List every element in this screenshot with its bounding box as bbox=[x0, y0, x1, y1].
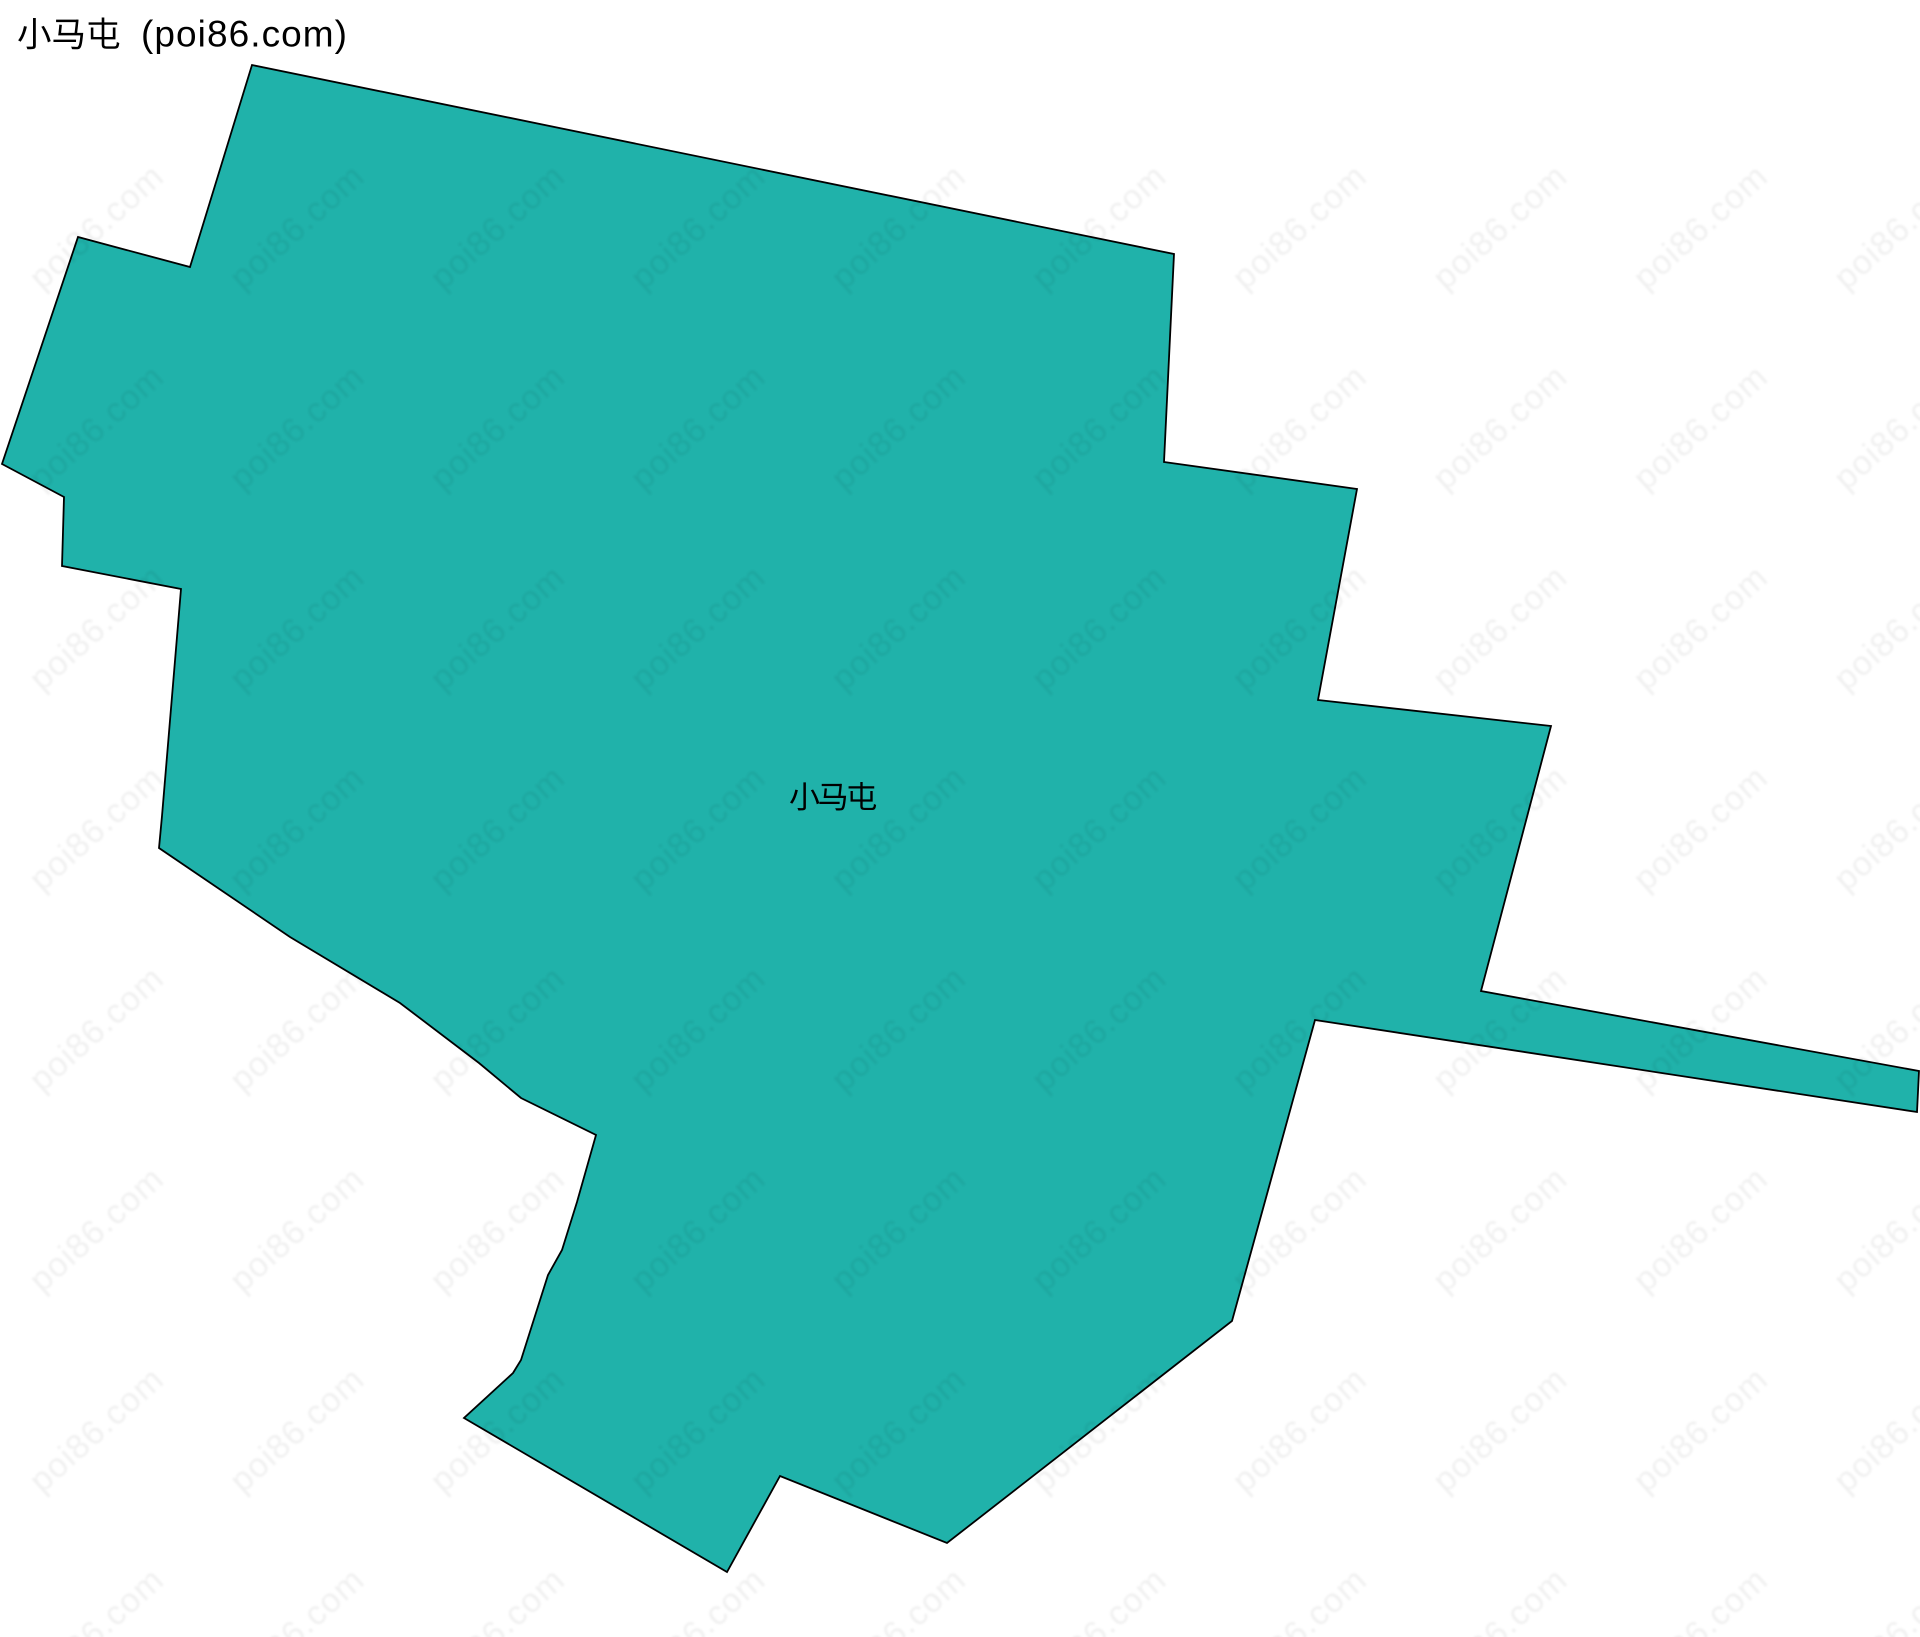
svg-text:(poi86.com): (poi86.com) bbox=[141, 14, 347, 55]
